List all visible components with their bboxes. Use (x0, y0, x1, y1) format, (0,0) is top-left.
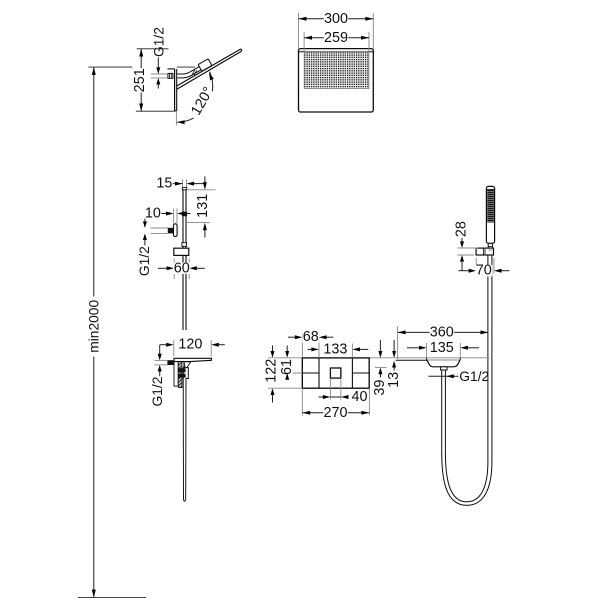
svg-text:28: 28 (454, 221, 470, 237)
svg-text:min2000: min2000 (86, 300, 101, 353)
svg-text:135: 135 (430, 340, 454, 356)
svg-text:15: 15 (156, 176, 172, 192)
svg-text:120: 120 (178, 337, 202, 353)
svg-text:270: 270 (323, 405, 347, 421)
svg-text:133: 133 (323, 341, 347, 357)
svg-text:360: 360 (430, 324, 454, 340)
svg-text:122: 122 (264, 359, 280, 383)
svg-text:68: 68 (303, 329, 319, 345)
svg-text:G1/2: G1/2 (137, 246, 152, 276)
svg-text:40: 40 (351, 389, 367, 405)
svg-text:259: 259 (324, 30, 348, 46)
svg-text:251: 251 (132, 68, 148, 92)
svg-text:G1/2: G1/2 (459, 369, 489, 384)
svg-text:G1/2: G1/2 (150, 377, 165, 407)
svg-text:61: 61 (279, 359, 295, 375)
svg-text:13: 13 (386, 372, 402, 388)
svg-text:131: 131 (195, 194, 211, 218)
svg-text:60: 60 (174, 260, 190, 276)
svg-text:10: 10 (145, 206, 161, 222)
svg-text:300: 300 (324, 11, 348, 27)
svg-text:G1/2: G1/2 (152, 27, 167, 57)
svg-text:70: 70 (476, 263, 492, 279)
